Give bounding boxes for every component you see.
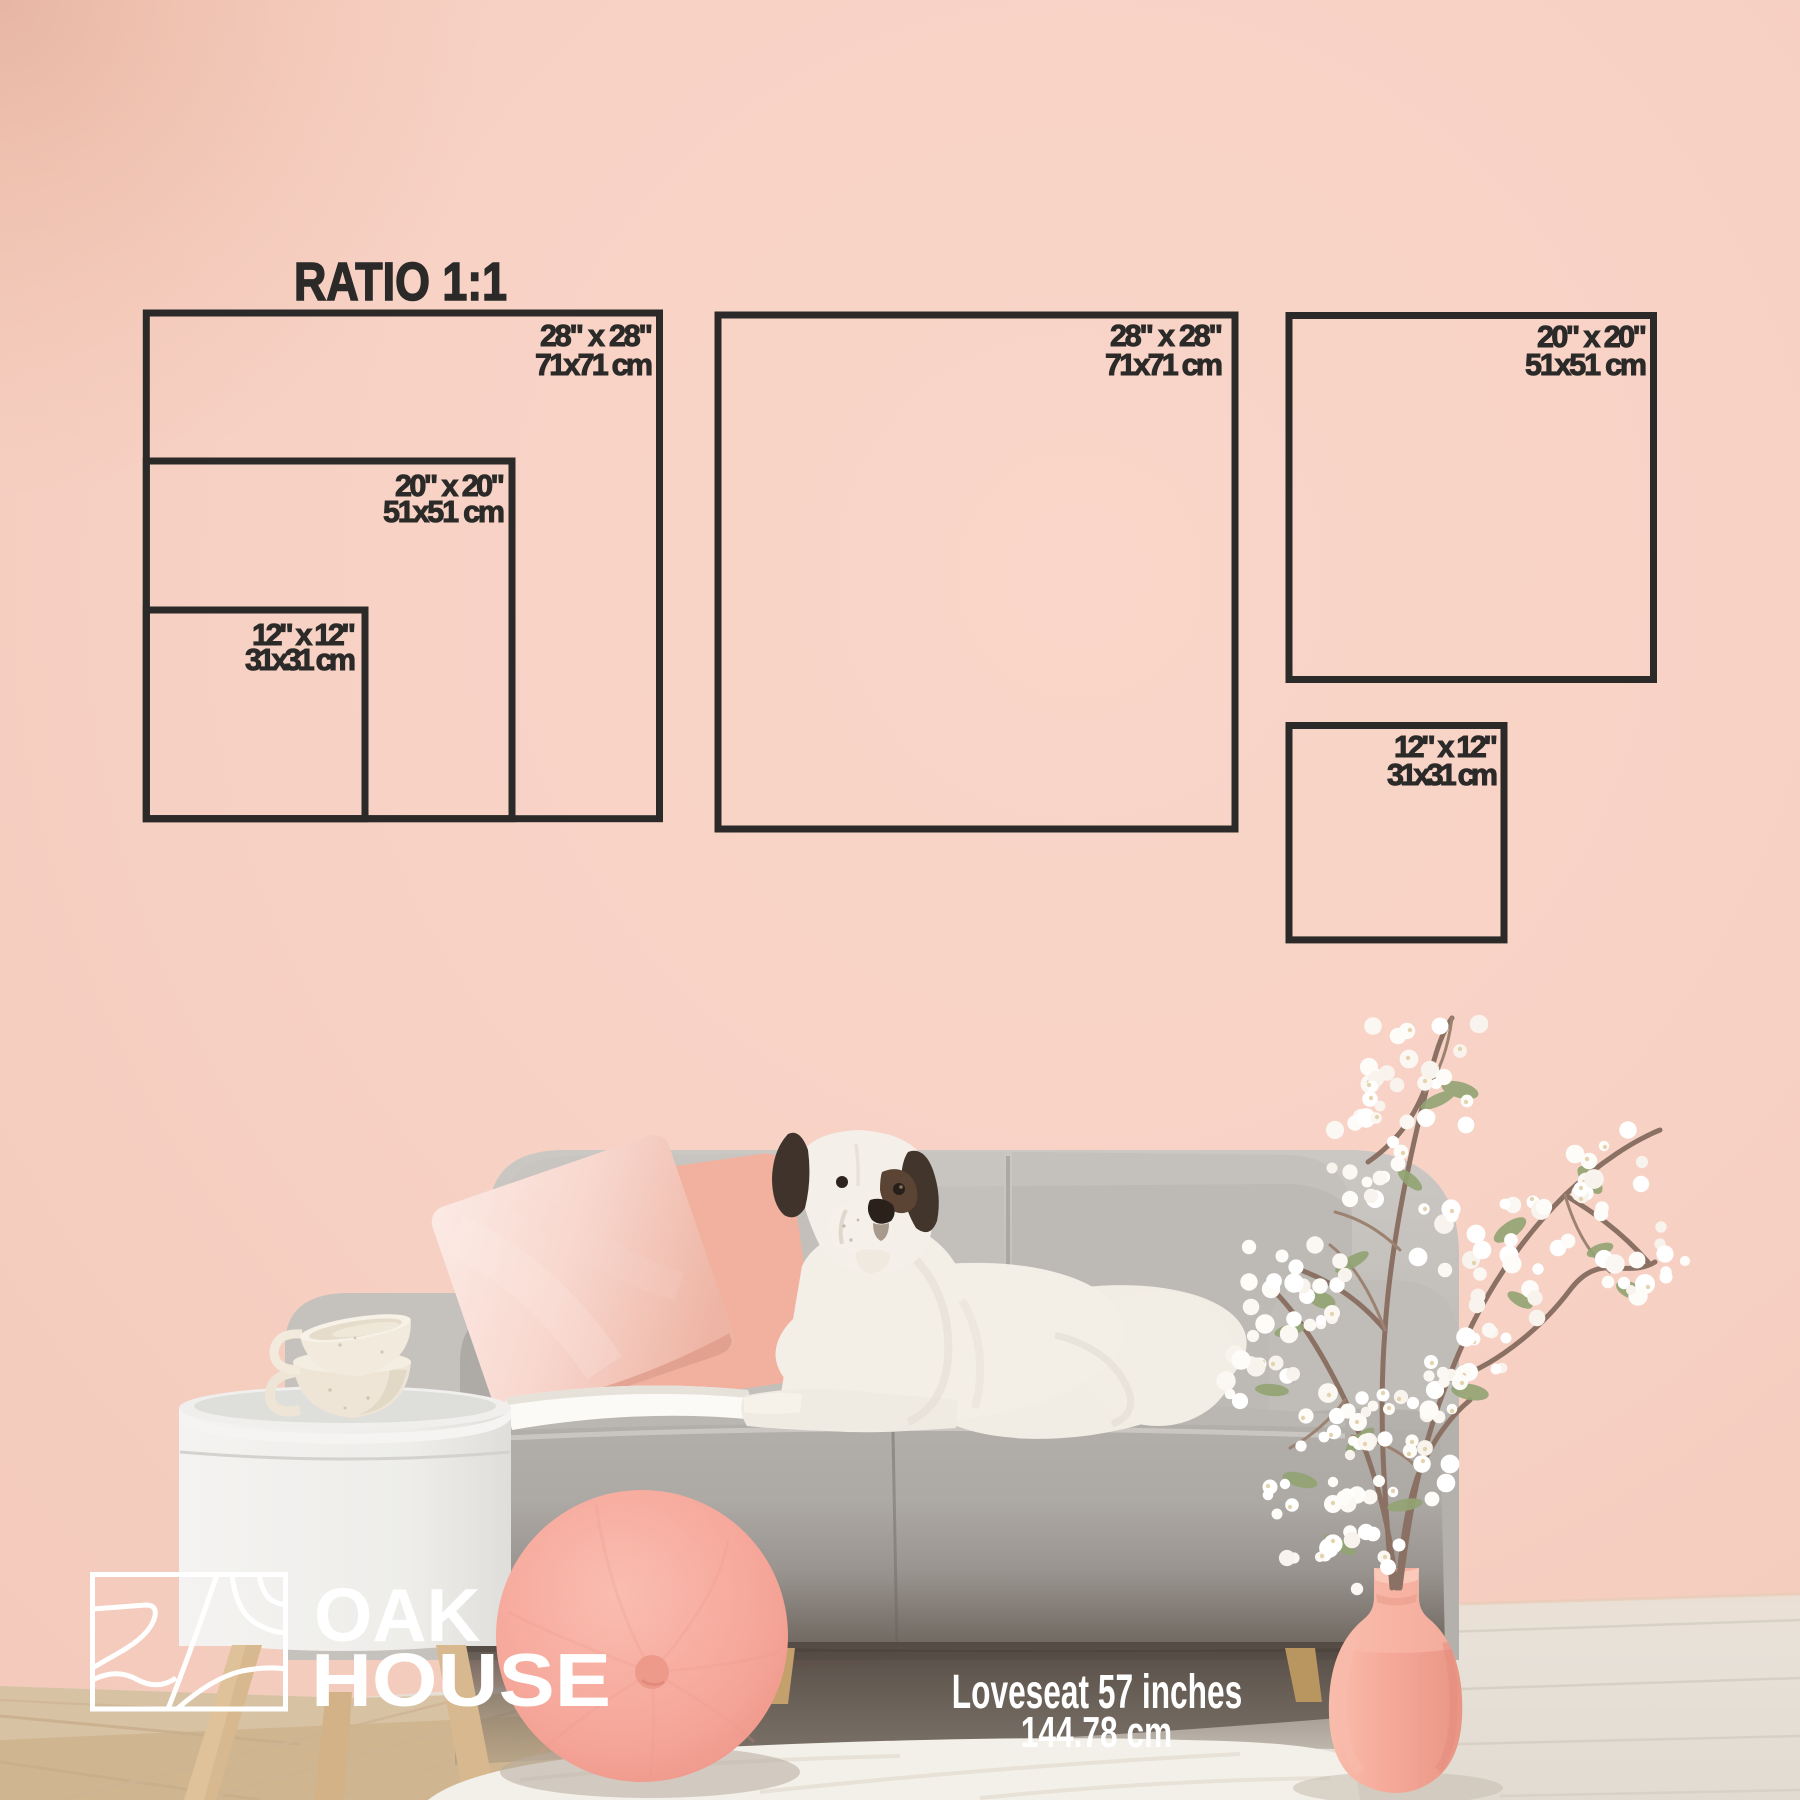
svg-text:HOUSE: HOUSE xyxy=(311,1638,611,1722)
svg-text:71x71 cm: 71x71 cm xyxy=(1105,348,1223,382)
svg-text:51x51 cm: 51x51 cm xyxy=(1525,348,1647,382)
svg-text:31x31 cm: 31x31 cm xyxy=(245,643,356,677)
svg-text:RATIO 1:1: RATIO 1:1 xyxy=(294,253,507,312)
svg-text:51x51 cm: 51x51 cm xyxy=(383,495,505,529)
svg-text:144.78 cm: 144.78 cm xyxy=(1021,1708,1172,1757)
svg-text:71x71 cm: 71x71 cm xyxy=(535,348,653,382)
svg-text:31x31 cm: 31x31 cm xyxy=(1387,758,1498,792)
